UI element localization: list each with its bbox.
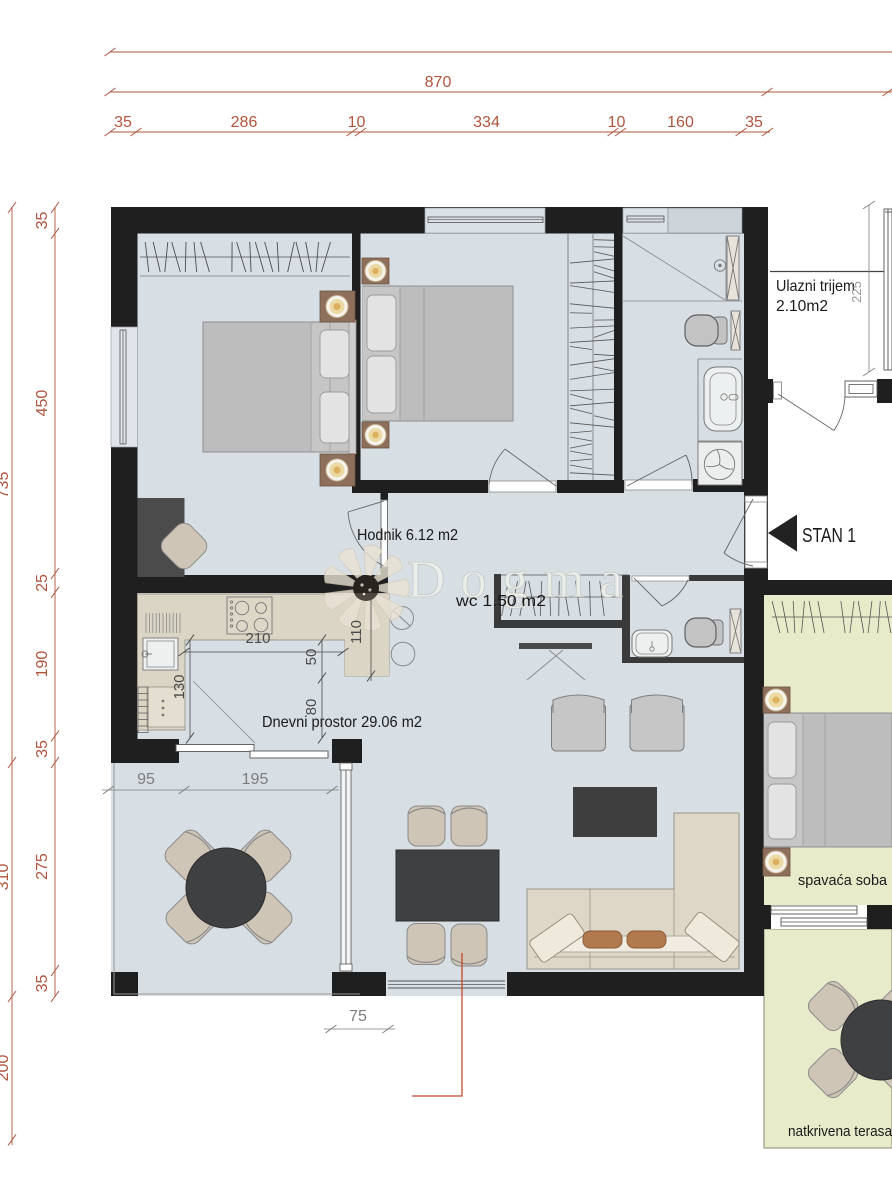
svg-text:190: 190 bbox=[34, 651, 51, 678]
svg-text:35: 35 bbox=[34, 212, 51, 230]
svg-text:spavaća soba: spavaća soba bbox=[798, 872, 888, 889]
svg-text:wc 1.50 m2: wc 1.50 m2 bbox=[455, 593, 546, 610]
svg-text:195: 195 bbox=[242, 771, 269, 788]
svg-text:95: 95 bbox=[137, 771, 155, 788]
svg-text:870: 870 bbox=[425, 74, 452, 91]
svg-text:Ulazni trijem: Ulazni trijem bbox=[776, 278, 855, 295]
svg-text:10: 10 bbox=[608, 114, 626, 131]
svg-text:200: 200 bbox=[0, 1055, 12, 1082]
svg-text:210: 210 bbox=[245, 630, 270, 647]
svg-text:Dnevni prostor 29.06 m2: Dnevni prostor 29.06 m2 bbox=[262, 714, 422, 731]
svg-text:natkrivena terasa: natkrivena terasa bbox=[788, 1123, 892, 1140]
svg-text:310: 310 bbox=[0, 864, 12, 891]
svg-text:Hodnik 6.12 m2: Hodnik 6.12 m2 bbox=[357, 527, 458, 544]
svg-text:35: 35 bbox=[34, 975, 51, 993]
svg-text:160: 160 bbox=[667, 114, 694, 131]
svg-text:10: 10 bbox=[348, 114, 366, 131]
svg-text:35: 35 bbox=[114, 114, 132, 131]
svg-text:275: 275 bbox=[34, 853, 51, 880]
svg-text:25: 25 bbox=[34, 574, 51, 592]
svg-text:130: 130 bbox=[171, 674, 188, 699]
svg-text:80: 80 bbox=[303, 699, 320, 716]
svg-text:50: 50 bbox=[303, 649, 320, 666]
svg-text:2.10m2: 2.10m2 bbox=[776, 298, 828, 315]
svg-text:225: 225 bbox=[849, 281, 864, 303]
svg-text:35: 35 bbox=[34, 740, 51, 758]
svg-text:75: 75 bbox=[349, 1008, 367, 1025]
svg-text:35: 35 bbox=[745, 114, 763, 131]
svg-text:286: 286 bbox=[231, 114, 258, 131]
svg-text:STAN 1: STAN 1 bbox=[802, 525, 856, 547]
svg-text:110: 110 bbox=[348, 620, 365, 644]
svg-text:334: 334 bbox=[473, 114, 500, 131]
svg-text:735: 735 bbox=[0, 472, 12, 499]
svg-text:450: 450 bbox=[34, 390, 51, 417]
